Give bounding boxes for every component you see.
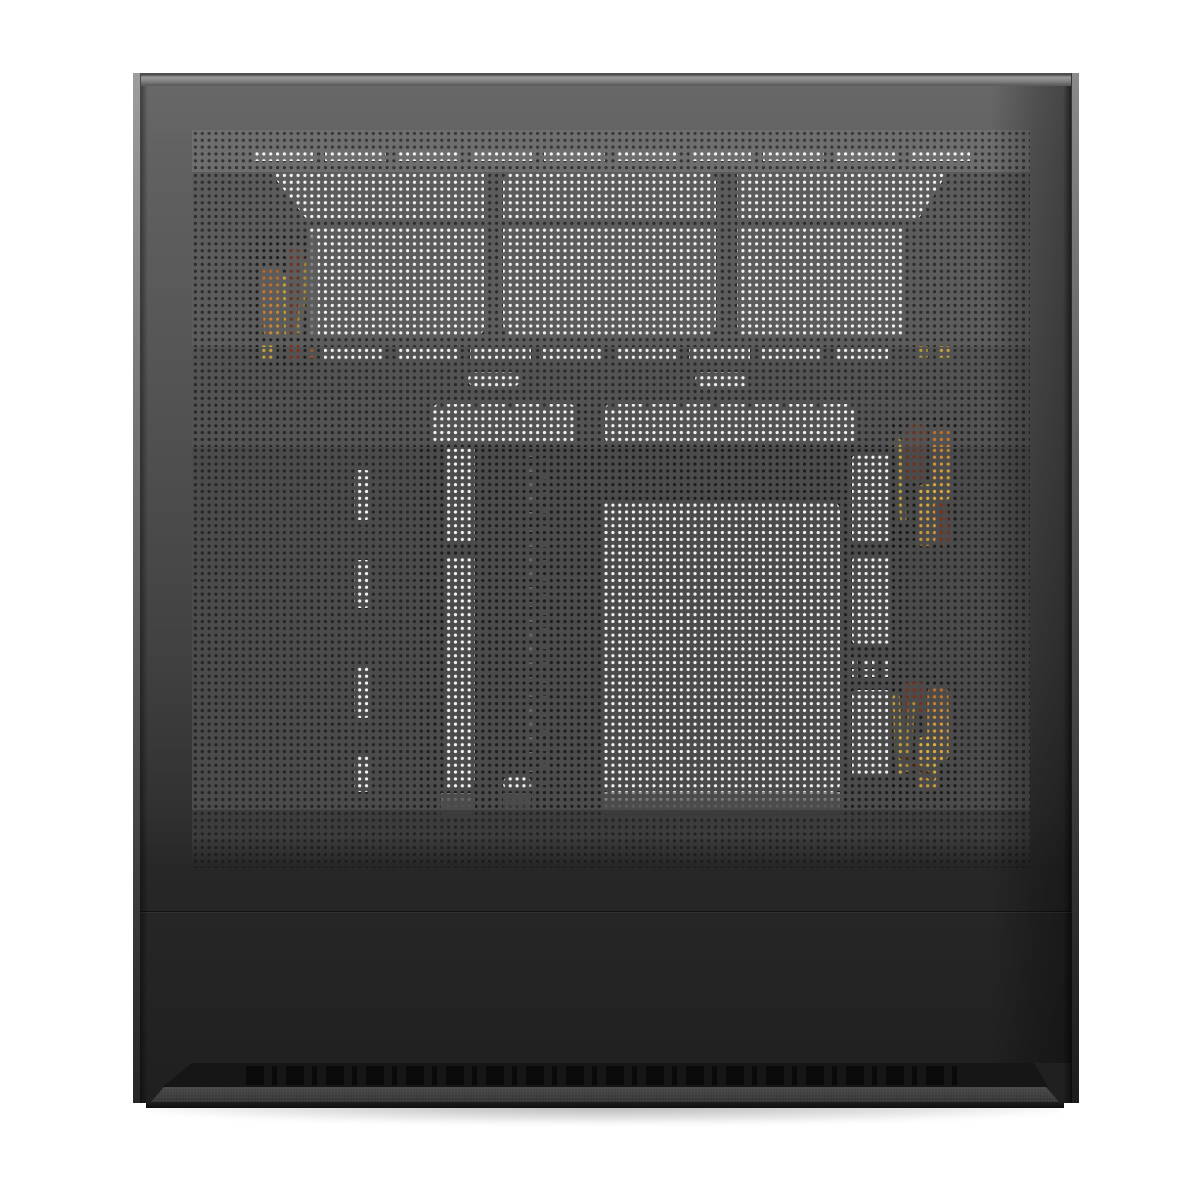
- case-top-edge: [133, 73, 1078, 86]
- mesh-panel-lower-band: [192, 447, 1030, 810]
- left-inner-shadow: [141, 85, 148, 1103]
- bottom-vent-slots: [246, 1066, 964, 1085]
- mesh-bottom-shadow: [192, 836, 1030, 868]
- case-front-edge-strip: [133, 73, 141, 1103]
- mesh-panel-mid-band: [192, 347, 1030, 447]
- case-base-plate: [150, 1087, 1060, 1103]
- case-rear-edge-strip: [1071, 73, 1079, 1103]
- right-inner-shadow: [1063, 85, 1071, 1103]
- product-photo-pc-case: [0, 0, 1200, 1200]
- lower-panel-seam: [141, 911, 1071, 913]
- right-lighting-shade: [990, 85, 1071, 1063]
- mesh-panel-fan-band: [192, 172, 1030, 347]
- case-bottom-edge: [146, 1102, 1064, 1108]
- mesh-panel-top-band: [192, 130, 1030, 172]
